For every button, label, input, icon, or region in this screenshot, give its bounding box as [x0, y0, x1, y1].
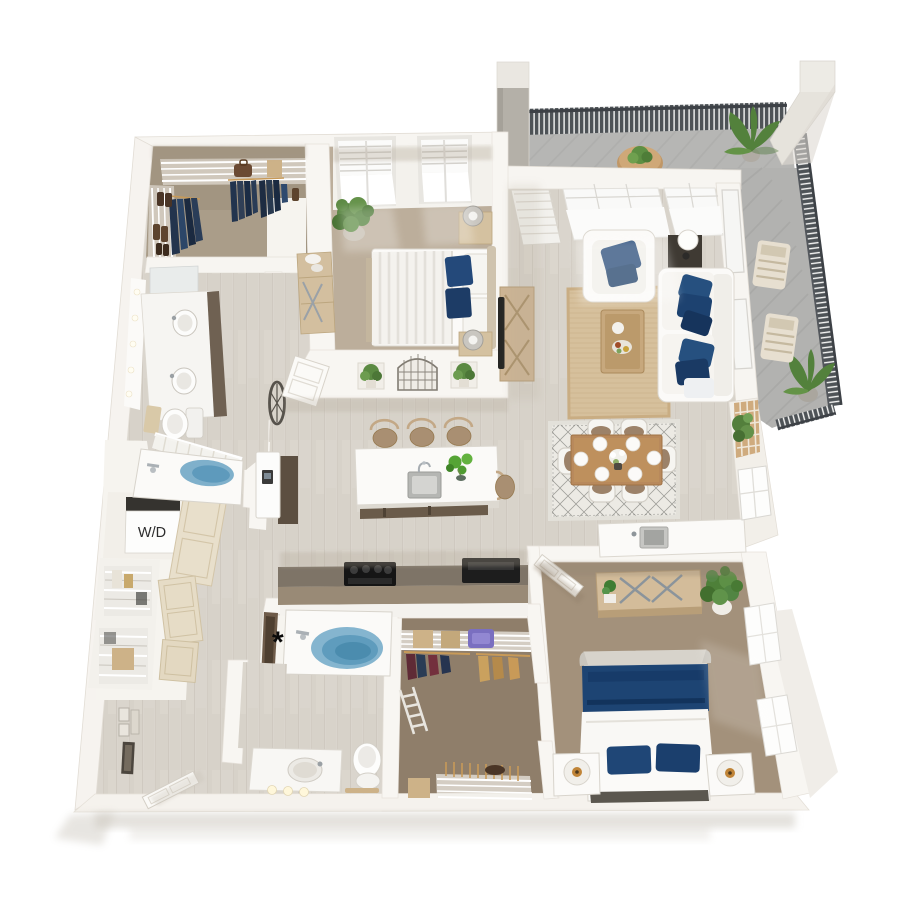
svg-text:*: *	[272, 626, 284, 659]
svg-text:W/D: W/D	[138, 525, 166, 541]
